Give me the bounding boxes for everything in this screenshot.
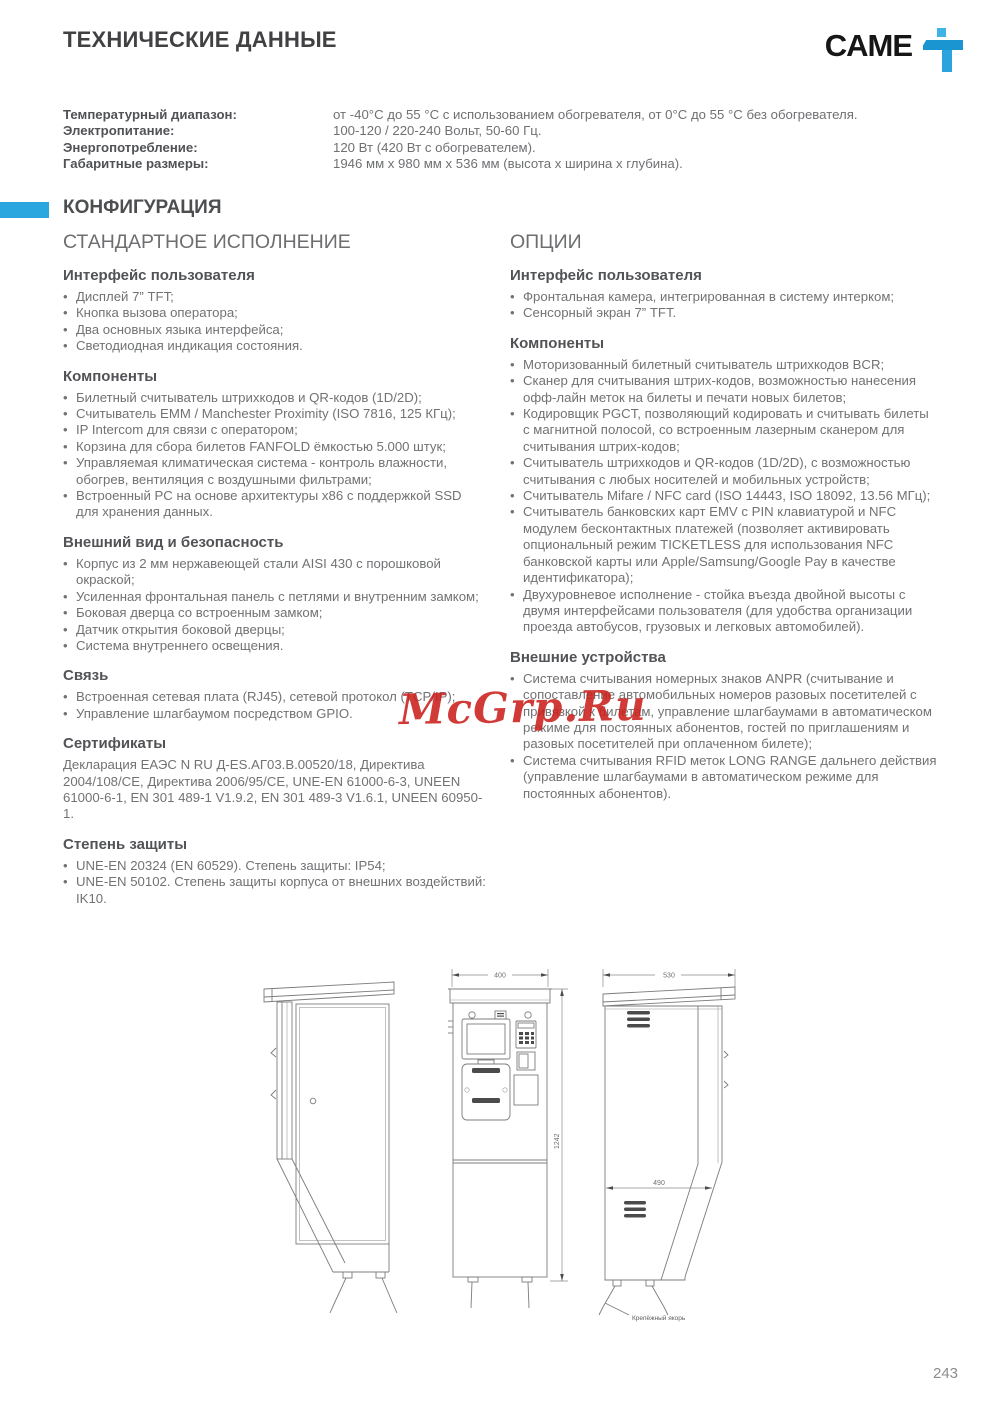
config-group: СертификатыДекларация ЕАЭС N RU Д-ES.АГ0… — [63, 735, 486, 823]
list-item-text: IP Intercom для связи с оператором; — [76, 422, 298, 437]
drawing-side-view-left — [263, 970, 435, 1318]
list-item: •Считыватель банковских карт EMV с PIN к… — [510, 504, 937, 586]
spec-row: Температурный диапазон:от -40°C до 55 °C… — [63, 107, 858, 123]
list-item-text: Светодиодная индикация состояния. — [76, 338, 303, 353]
bullet-icon: • — [510, 289, 515, 305]
spec-value: 1946 мм x 980 мм x 536 мм (высота x шири… — [333, 156, 683, 172]
list-item-text: Моторизованный билетный считыватель штри… — [523, 357, 884, 372]
bullet-icon: • — [510, 455, 515, 471]
bullet-icon: • — [63, 689, 68, 705]
mcgrp-watermark: McGrp.Ru — [399, 681, 647, 734]
list-item-text: Кнопка вызова оператора; — [76, 305, 238, 320]
list-item-text: Считыватель банковских карт EMV с PIN кл… — [523, 504, 896, 585]
list-item: •UNE-EN 50102. Степень защиты корпуса от… — [63, 874, 486, 907]
spec-value: от -40°C до 55 °C с использованием обогр… — [333, 107, 858, 123]
datasheet-page: ТЕХНИЧЕСКИЕ ДАННЫЕ CAME Температурный ди… — [0, 0, 1000, 1414]
bullet-icon: • — [510, 373, 515, 389]
column-options-title: ОПЦИИ — [510, 231, 937, 254]
config-group: Интерфейс пользователя•Фронтальная камер… — [510, 267, 937, 322]
section-accent-bar — [0, 202, 49, 218]
list-item-text: Управляемая климатическая система - конт… — [76, 455, 447, 486]
list-item-text: Сенсорный экран 7” TFT. — [523, 305, 676, 320]
came-figure-body — [942, 50, 952, 72]
bullet-icon: • — [63, 289, 68, 305]
list-item-text: Встроенный PC на основе архитектуры x86 … — [76, 488, 462, 519]
list-item: •Дисплей 7” TFT; — [63, 289, 486, 305]
list-item-text: Корпус из 2 мм нержавеющей стали AISI 43… — [76, 556, 441, 587]
list-item-text: Кодировщик PGCT, позволяющий кодировать … — [523, 406, 929, 454]
bullet-icon: • — [63, 338, 68, 354]
list-item: •Встроенный PC на основе архитектуры x86… — [63, 488, 486, 521]
bullet-icon: • — [63, 858, 68, 874]
bullet-icon: • — [63, 406, 68, 422]
list-item-text: UNE-EN 50102. Степень защиты корпуса от … — [76, 874, 486, 905]
came-figure-icon — [920, 22, 964, 74]
bullet-icon: • — [510, 357, 515, 373]
list-item-text: Билетный считыватель штрихкодов и QR-код… — [76, 390, 422, 405]
spec-label: Габаритные размеры: — [63, 156, 333, 172]
list-item-text: Система считывания RFID меток LONG RANGE… — [523, 753, 937, 801]
list-item: •Кодировщик PGCT, позволяющий кодировать… — [510, 406, 937, 455]
bullet-icon: • — [63, 556, 68, 572]
came-figure-dot — [937, 28, 946, 37]
list-item: •Система внутреннего освещения. — [63, 638, 486, 654]
spec-label: Электропитание: — [63, 123, 333, 139]
group-heading: Степень защиты — [63, 836, 486, 853]
config-group: Компоненты•Моторизованный билетный считы… — [510, 335, 937, 636]
dim-front-width: 400 — [494, 973, 506, 980]
group-heading: Внешний вид и безопасность — [63, 534, 486, 551]
bullet-icon: • — [63, 622, 68, 638]
list-item: •Корпус из 2 мм нержавеющей стали AISI 4… — [63, 556, 486, 589]
group-heading: Компоненты — [510, 335, 937, 352]
spec-label: Энергопотребление: — [63, 140, 333, 156]
group-heading: Интерфейс пользователя — [63, 267, 486, 284]
spec-value: 120 Вт (420 Вт с обогревателем). — [333, 140, 536, 156]
list-item: •UNE-EN 20324 (EN 60529). Степень защиты… — [63, 858, 486, 874]
drawing-side-view-right: 530 — [593, 963, 743, 1328]
list-item-text: Боковая дверца со встроенным замком; — [76, 605, 322, 620]
bullet-icon: • — [63, 455, 68, 471]
list-item: •Двухуровневое исполнение - стойка въезд… — [510, 587, 937, 636]
page-title: ТЕХНИЧЕСКИЕ ДАННЫЕ — [63, 27, 337, 53]
list-item: •Система считывания RFID меток LONG RANG… — [510, 753, 937, 802]
list-item: •Сканер для считывания штрих-кодов, возм… — [510, 373, 937, 406]
bullet-icon: • — [63, 874, 68, 890]
bullet-icon: • — [63, 390, 68, 406]
list-item: •Два основных языка интерфейса; — [63, 322, 486, 338]
bullet-icon: • — [63, 706, 68, 722]
list-item: •Считыватель Mifare / NFC card (ISO 1444… — [510, 488, 937, 504]
group-heading: Компоненты — [63, 368, 486, 385]
specs-table: Температурный диапазон:от -40°C до 55 °C… — [63, 107, 858, 173]
bullet-icon: • — [510, 753, 515, 769]
list-item-text: Корзина для сбора билетов FANFOLD ёмкост… — [76, 439, 446, 454]
bullet-icon: • — [510, 488, 515, 504]
page-number: 243 — [933, 1365, 958, 1382]
bullet-icon: • — [63, 305, 68, 321]
list-item-text: Сканер для считывания штрих-кодов, возмо… — [523, 373, 916, 404]
group-heading: Сертификаты — [63, 735, 486, 752]
came-figure-arms — [923, 40, 963, 50]
spec-row: Электропитание:100-120 / 220-240 Вольт, … — [63, 123, 858, 139]
bullet-icon: • — [510, 504, 515, 520]
bullet-icon: • — [510, 305, 515, 321]
list-item-text: Фронтальная камера, интегрированная в си… — [523, 289, 894, 304]
list-item-text: Управление шлагбаумом посредством GPIO. — [76, 706, 353, 721]
list-item: •Боковая дверца со встроенным замком; — [63, 605, 486, 621]
list-item: •Светодиодная индикация состояния. — [63, 338, 486, 354]
group-heading: Интерфейс пользователя — [510, 267, 937, 284]
list-item-text: Двухуровневое исполнение - стойка въезда… — [523, 587, 912, 635]
group-paragraph: Декларация ЕАЭС N RU Д-ES.АГ03.В.00520/1… — [63, 757, 486, 823]
config-group: Интерфейс пользователя•Дисплей 7” TFT;•К… — [63, 267, 486, 355]
config-group: Степень защиты•UNE-EN 20324 (EN 60529). … — [63, 836, 486, 907]
bullet-icon: • — [63, 638, 68, 654]
bullet-icon: • — [63, 322, 68, 338]
spec-value: 100-120 / 220-240 Вольт, 50-60 Гц. — [333, 123, 541, 139]
list-item-text: Два основных языка интерфейса; — [76, 322, 283, 337]
bullet-icon: • — [63, 439, 68, 455]
list-item: •Корзина для сбора билетов FANFOLD ёмкос… — [63, 439, 486, 455]
bullet-icon: • — [63, 605, 68, 621]
group-heading: Внешние устройства — [510, 649, 937, 666]
spec-row: Габаритные размеры:1946 мм x 980 мм x 53… — [63, 156, 858, 172]
anchor-label: Крепёжный якорь — [632, 1314, 686, 1322]
drawing-front-view: 400 1242 — [438, 963, 572, 1315]
list-item: •Сенсорный экран 7” TFT. — [510, 305, 937, 321]
list-item: •Кнопка вызова оператора; — [63, 305, 486, 321]
config-group: Компоненты•Билетный считыватель штрихкод… — [63, 368, 486, 521]
dim-side-depth: 530 — [663, 973, 675, 980]
bullet-icon: • — [510, 406, 515, 422]
list-item-text: UNE-EN 20324 (EN 60529). Степень защиты:… — [76, 858, 386, 873]
list-item: •Фронтальная камера, интегрированная в с… — [510, 289, 937, 305]
column-standard-title: СТАНДАРТНОЕ ИСПОЛНЕНИЕ — [63, 231, 486, 254]
group-list-standard: Интерфейс пользователя•Дисплей 7” TFT;•К… — [63, 267, 486, 907]
bullet-icon: • — [63, 422, 68, 438]
list-item-text: Дисплей 7” TFT; — [76, 289, 174, 304]
list-item-text: Считыватель Mifare / NFC card (ISO 14443… — [523, 488, 930, 503]
list-item: •IP Intercom для связи с оператором; — [63, 422, 486, 438]
dim-side-base: 490 — [653, 1180, 665, 1187]
list-item-text: Система внутреннего освещения. — [76, 638, 283, 653]
came-logo: CAME — [825, 22, 964, 74]
bullet-icon: • — [63, 488, 68, 504]
list-item: •Управляемая климатическая система - кон… — [63, 455, 486, 488]
list-item-text: Считыватель штрихкодов и QR-кодов (1D/2D… — [523, 455, 910, 486]
bullet-icon: • — [63, 589, 68, 605]
spec-label: Температурный диапазон: — [63, 107, 333, 123]
column-standard: СТАНДАРТНОЕ ИСПОЛНЕНИЕ Интерфейс пользов… — [63, 231, 486, 907]
list-item: •Считыватель штрихкодов и QR-кодов (1D/2… — [510, 455, 937, 488]
came-logo-text: CAME — [825, 30, 912, 61]
list-item-text: Датчик открытия боковой дверцы; — [76, 622, 285, 637]
config-group: Внешний вид и безопасность•Корпус из 2 м… — [63, 534, 486, 654]
group-heading: Связь — [63, 667, 486, 684]
list-item: •Считыватель EMM / Manchester Proximity … — [63, 406, 486, 422]
list-item-text: Считыватель EMM / Manchester Proximity (… — [76, 406, 456, 421]
list-item: •Моторизованный билетный считыватель штр… — [510, 357, 937, 373]
list-item-text: Усиленная фронтальная панель с петлями и… — [76, 589, 479, 604]
list-item: •Усиленная фронтальная панель с петлями … — [63, 589, 486, 605]
spec-row: Энергопотребление:120 Вт (420 Вт с обогр… — [63, 140, 858, 156]
list-item: •Билетный считыватель штрихкодов и QR-ко… — [63, 390, 486, 406]
list-item: •Датчик открытия боковой дверцы; — [63, 622, 486, 638]
section-title-configuration: КОНФИГУРАЦИЯ — [63, 197, 221, 219]
bullet-icon: • — [510, 587, 515, 603]
dim-front-height: 1242 — [554, 1133, 561, 1149]
